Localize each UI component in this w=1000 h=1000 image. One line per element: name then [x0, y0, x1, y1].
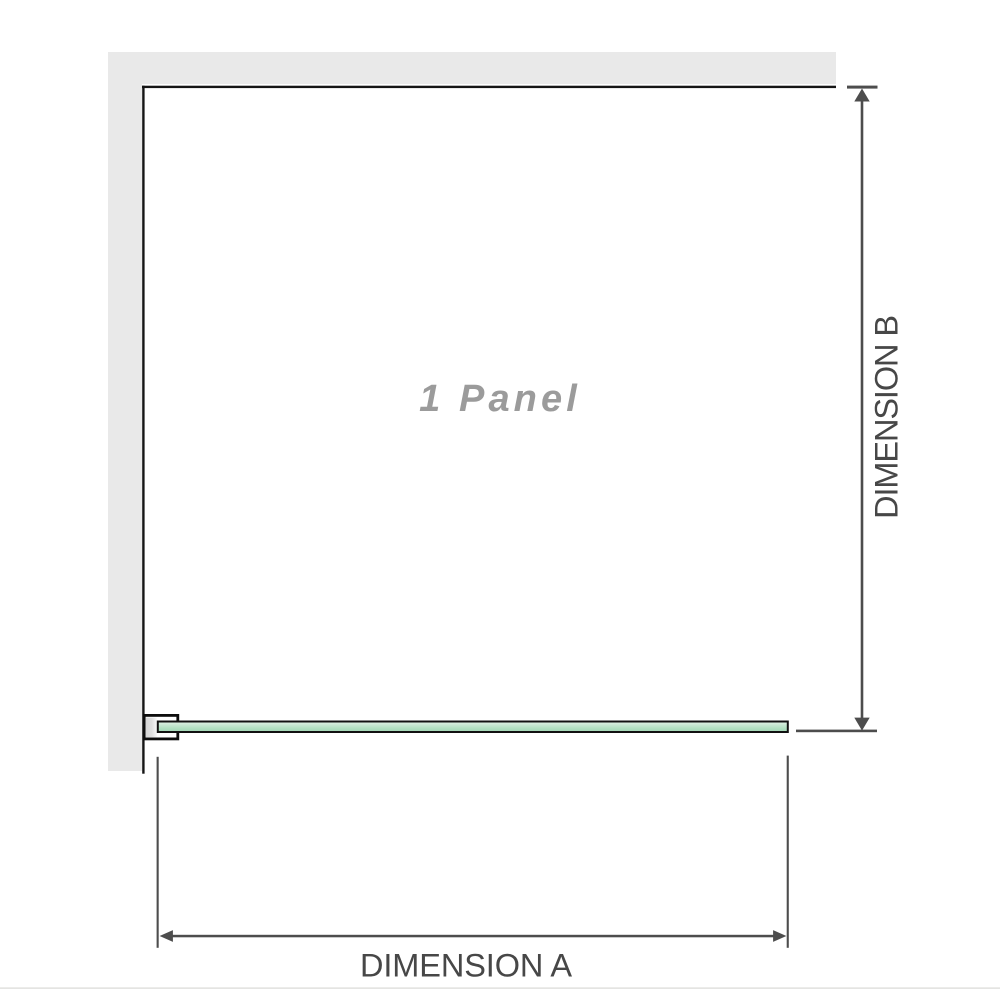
svg-text:DIMENSION B: DIMENSION B	[869, 316, 905, 519]
svg-text:1 Panel: 1 Panel	[419, 378, 581, 420]
svg-text:DIMENSION A: DIMENSION A	[360, 948, 572, 984]
